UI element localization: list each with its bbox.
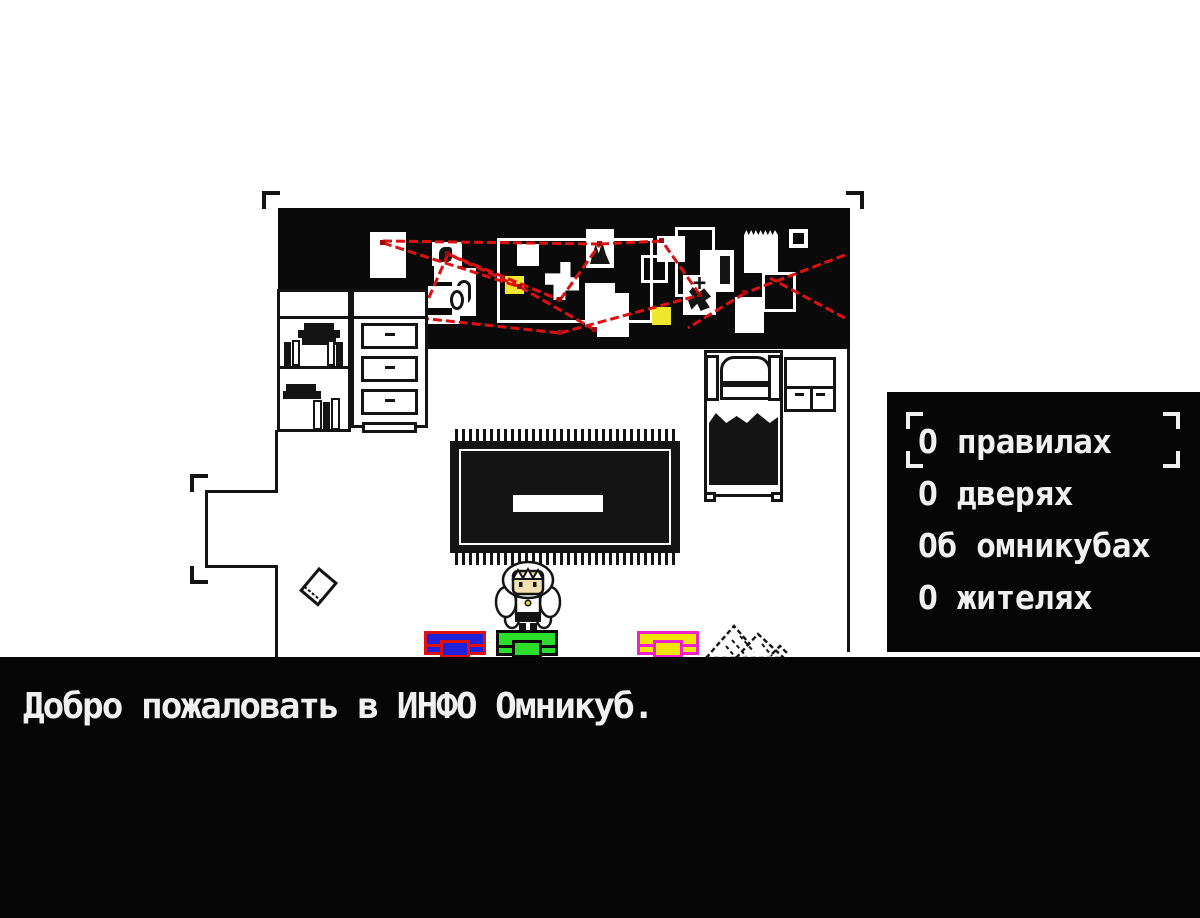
pillow xyxy=(720,356,771,384)
camera-bracket-alcove-bottom-icon xyxy=(190,566,208,584)
bed-foot xyxy=(771,492,783,502)
bed-post xyxy=(705,355,719,401)
menu-item-about-residents[interactable]: О жителях xyxy=(918,578,1092,617)
dresser xyxy=(351,289,428,428)
menu-item-about-doors[interactable]: О дверях xyxy=(918,474,1073,513)
menu-item-about-rules[interactable]: О правилах xyxy=(918,422,1112,461)
room-wall-left xyxy=(275,430,278,492)
crate-green xyxy=(496,630,558,656)
rug-fringe xyxy=(455,429,675,441)
paper-pile-icon xyxy=(702,616,797,660)
info-menu: О правилах О дверях Об омникубах О жител… xyxy=(887,392,1200,652)
crate-yellow xyxy=(637,631,699,655)
alcove-wall-top xyxy=(207,490,278,493)
blanket xyxy=(709,413,778,485)
rug-center-stripe xyxy=(513,495,603,512)
camera-bracket-alcove-top-icon xyxy=(190,474,208,492)
bookshelf xyxy=(277,289,351,432)
room-wall-right xyxy=(847,349,850,652)
nightstand xyxy=(784,357,836,412)
dresser-base xyxy=(362,422,417,433)
dialogue-box[interactable]: Добро пожаловать в ИНФО Омникуб. xyxy=(0,657,1200,918)
menu-item-about-omnicubes[interactable]: Об омникубах xyxy=(918,526,1150,565)
camera-bracket-top-left-icon xyxy=(262,191,280,209)
dialogue-text: Добро пожаловать в ИНФО Омникуб. xyxy=(23,686,653,727)
crate-blue xyxy=(424,631,486,655)
alcove-wall-left xyxy=(205,490,208,568)
bed-foot xyxy=(704,492,716,502)
alcove-wall-bottom xyxy=(207,565,278,568)
player-character xyxy=(494,556,562,636)
room-wall-left-lower xyxy=(275,565,278,657)
rug-fringe xyxy=(455,553,675,565)
camera-bracket-top-right-icon xyxy=(846,191,864,209)
rug xyxy=(450,429,680,566)
floor-book-icon xyxy=(296,566,340,612)
bed-headrest xyxy=(720,384,771,400)
bed xyxy=(704,350,783,497)
